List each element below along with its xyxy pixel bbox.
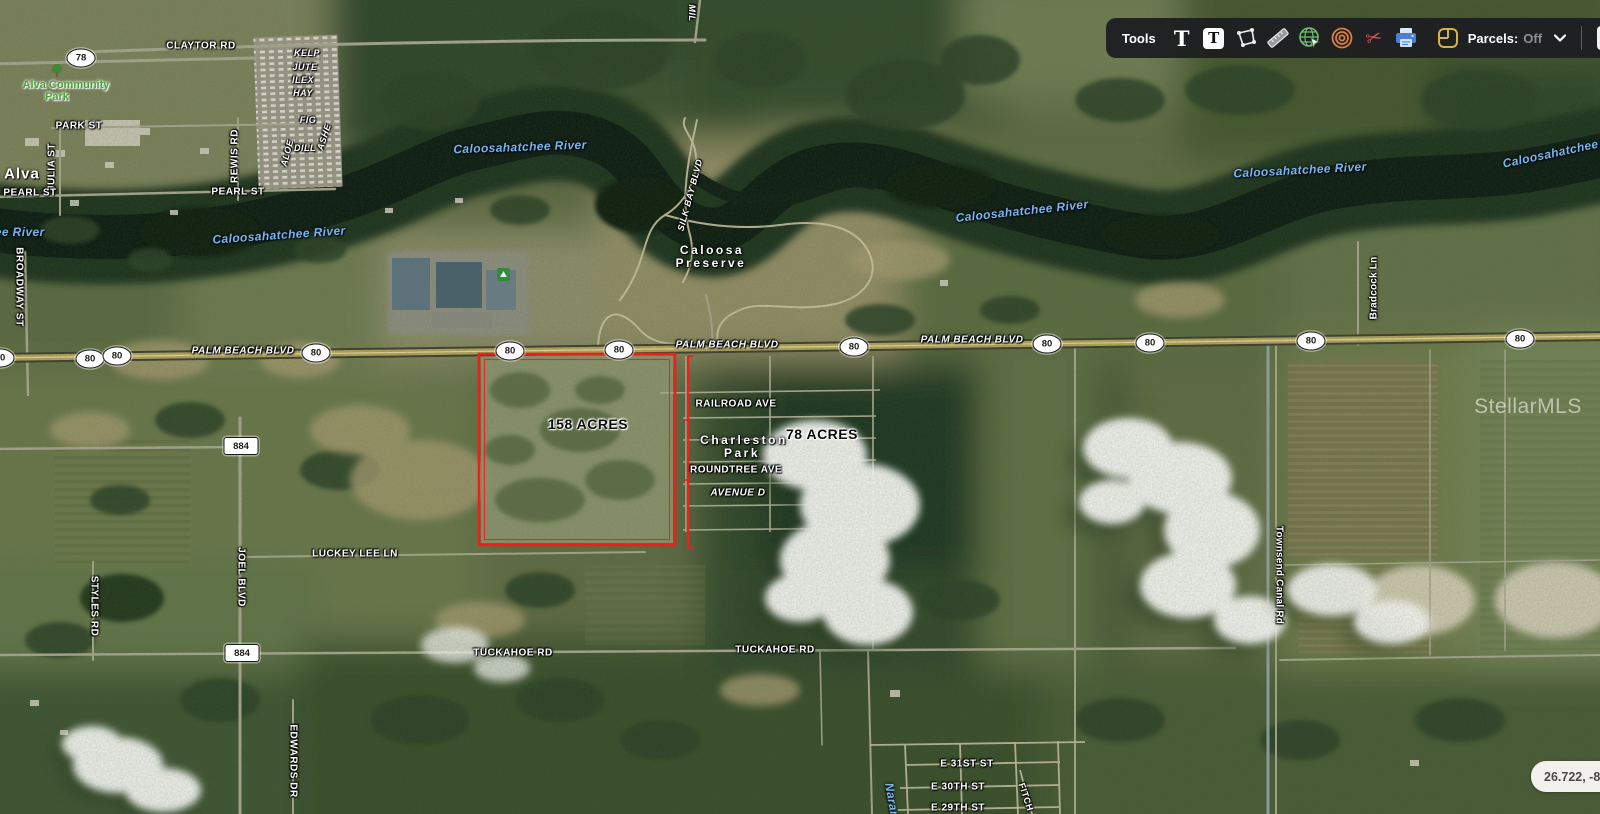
polygon-tool-icon xyxy=(1234,26,1258,50)
parcels-toggle-group[interactable]: Parcels: Off xyxy=(1436,26,1569,50)
parcels-state-value: Off xyxy=(1523,31,1542,46)
route-shield-80: 80 xyxy=(1297,332,1326,351)
coordinates-value: 26.722, -81 xyxy=(1544,770,1600,784)
route-shield-80: 80 xyxy=(76,350,105,369)
toolbar-divider xyxy=(1581,26,1582,50)
route-shield-80: 80 xyxy=(1033,335,1062,354)
street-view-globe-button[interactable] xyxy=(1294,22,1326,54)
ruler-icon xyxy=(1265,25,1291,51)
parcels-layer-icon xyxy=(1436,26,1460,50)
parcels-label: Parcels: xyxy=(1468,31,1519,46)
route-shield-884: 884 xyxy=(224,437,259,455)
route-shield-80: 80 xyxy=(840,338,869,357)
route-shield-80: 80 xyxy=(103,347,132,366)
polygon-draw-tool-button[interactable] xyxy=(1230,22,1262,54)
text-tool-button[interactable]: T xyxy=(1166,22,1198,54)
route-shield-80: 80 xyxy=(1506,330,1535,349)
legend-panel-icon xyxy=(1595,24,1600,52)
cut-tool-button[interactable]: ✂ xyxy=(1358,22,1390,54)
map-toolbar: Tools T T ✂ xyxy=(1106,18,1600,58)
route-shield-80: 80 xyxy=(605,341,634,360)
text-box-tool-icon: T xyxy=(1203,28,1224,49)
route-shield-80: 80 xyxy=(302,344,331,363)
cursor-coordinates-readout: 26.722, -81 xyxy=(1531,761,1600,792)
printer-icon xyxy=(1393,25,1419,51)
globe-cursor-icon xyxy=(1297,25,1323,51)
print-tool-button[interactable] xyxy=(1390,22,1422,54)
tools-label: Tools xyxy=(1122,31,1156,46)
concentric-rings-icon xyxy=(1329,25,1355,51)
route-shield-80: 80 xyxy=(496,342,525,361)
map-application: { "toolbar": { "tools_label": "Tools", "… xyxy=(0,0,1600,814)
radius-tool-button[interactable] xyxy=(1326,22,1358,54)
route-shield-884: 884 xyxy=(225,644,260,662)
route-shield-78: 78 xyxy=(67,49,96,68)
chevron-down-icon xyxy=(1551,29,1569,47)
text-box-tool-button[interactable]: T xyxy=(1198,22,1230,54)
scissors-icon: ✂ xyxy=(1364,27,1384,49)
text-tool-icon: T xyxy=(1174,28,1190,49)
legend-panel-button[interactable] xyxy=(1592,22,1600,54)
satellite-imagery[interactable] xyxy=(0,0,1600,814)
route-shield-80: 80 xyxy=(1136,334,1165,353)
measure-tool-button[interactable] xyxy=(1262,22,1294,54)
